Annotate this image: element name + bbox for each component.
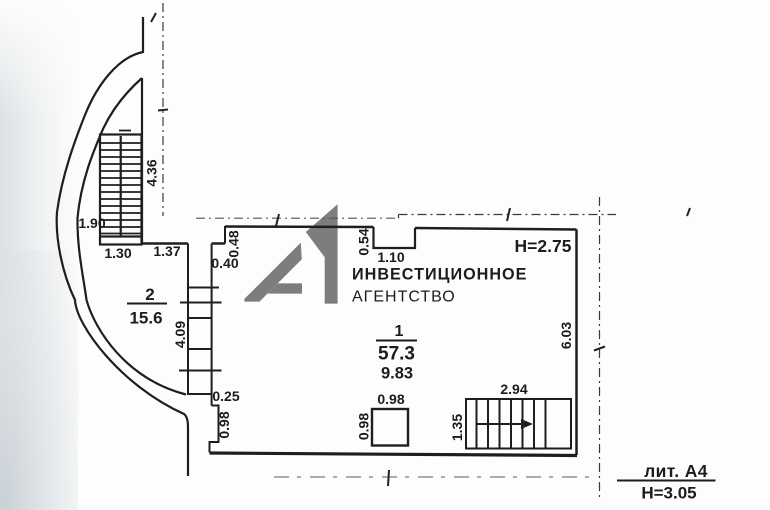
svg-text:0.25: 0.25 xyxy=(212,388,239,404)
svg-text:1.37: 1.37 xyxy=(153,243,180,259)
svg-text:0.98: 0.98 xyxy=(377,391,404,407)
svg-text:1: 1 xyxy=(395,323,404,340)
svg-text:2: 2 xyxy=(145,285,154,304)
svg-text:0.48: 0.48 xyxy=(226,230,242,257)
svg-text:9.83: 9.83 xyxy=(381,365,413,383)
svg-text:4.36: 4.36 xyxy=(144,159,160,186)
svg-text:0.98: 0.98 xyxy=(356,413,372,440)
svg-text:АГЕНТСТВО: АГЕНТСТВО xyxy=(352,289,456,306)
svg-text:H=3.05: H=3.05 xyxy=(641,484,696,503)
svg-text:1.90: 1.90 xyxy=(78,215,105,231)
svg-text:57.3: 57.3 xyxy=(378,344,415,365)
svg-text:ИНВЕСТИЦИОННОЕ: ИНВЕСТИЦИОННОЕ xyxy=(352,266,527,284)
svg-text:1.30: 1.30 xyxy=(104,245,131,261)
svg-text:4.09: 4.09 xyxy=(172,321,188,348)
svg-text:лит. А4: лит. А4 xyxy=(644,461,708,481)
svg-text:1.35: 1.35 xyxy=(449,414,465,441)
svg-text:1.10: 1.10 xyxy=(377,249,404,265)
svg-text:0.98: 0.98 xyxy=(216,411,232,438)
svg-text:6.03: 6.03 xyxy=(558,322,574,349)
svg-text:15.6: 15.6 xyxy=(129,309,162,328)
svg-text:2.94: 2.94 xyxy=(500,381,527,397)
svg-text:H=2.75: H=2.75 xyxy=(515,236,572,256)
svg-text:0.54: 0.54 xyxy=(356,228,372,255)
